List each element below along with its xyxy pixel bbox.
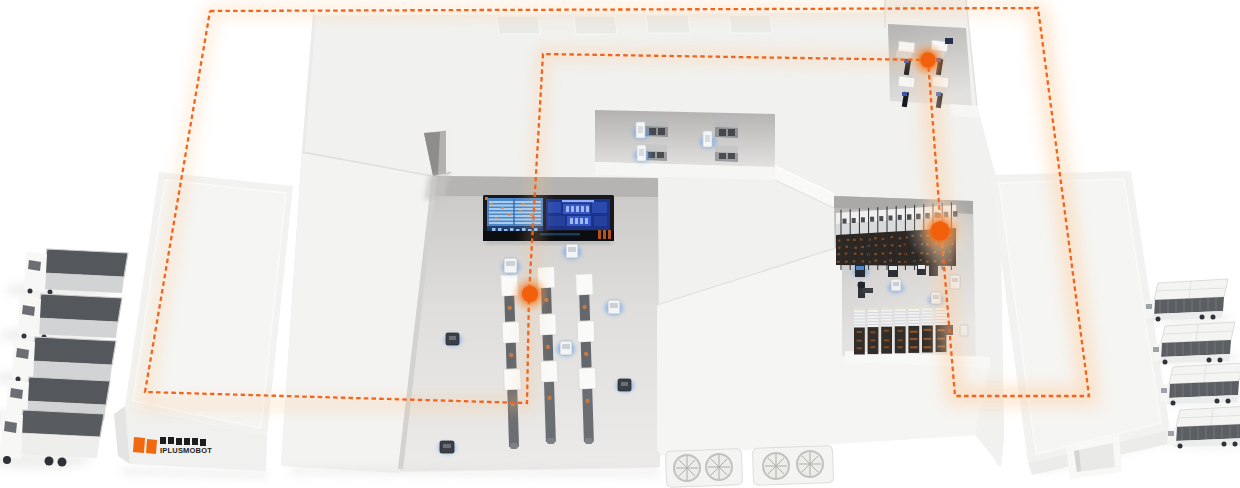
svg-text:IPLUSMOBOT: IPLUSMOBOT: [160, 446, 212, 455]
